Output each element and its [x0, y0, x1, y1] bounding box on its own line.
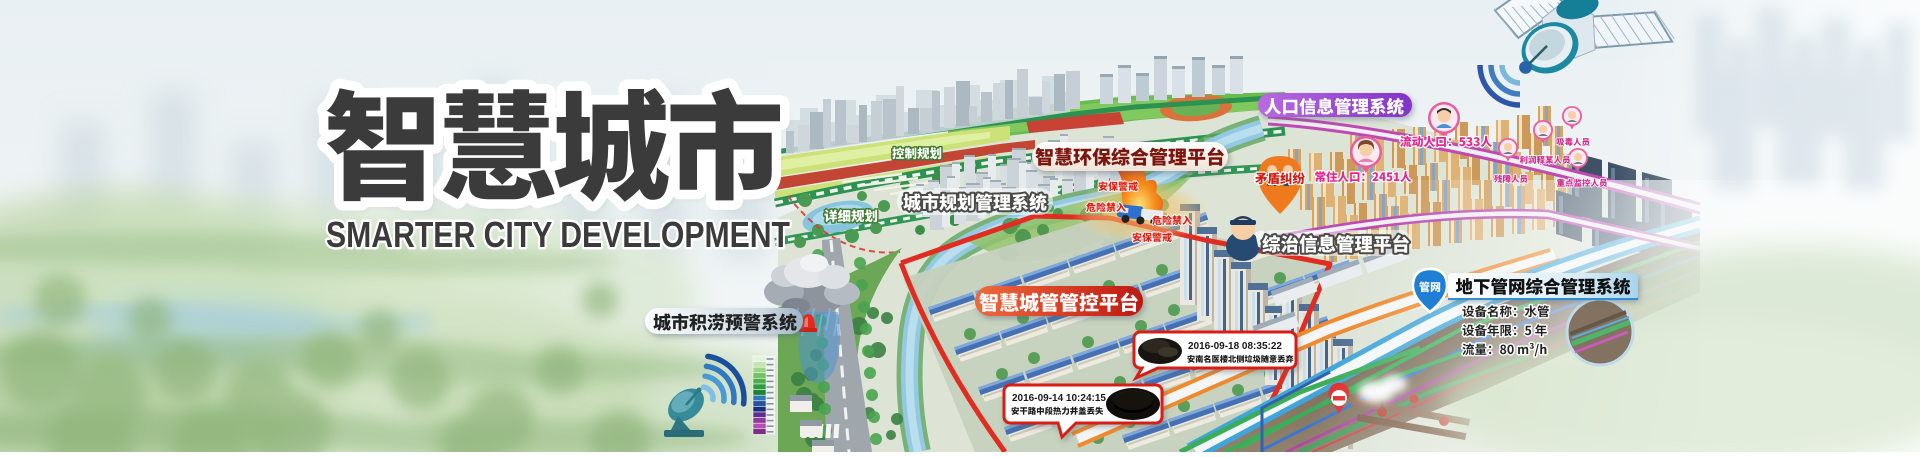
svg-text:2016-09-18 08:35:22: 2016-09-18 08:35:22 — [1188, 341, 1282, 352]
svg-text:SMARTER CITY DEVELOPMENT: SMARTER CITY DEVELOPMENT — [326, 214, 790, 255]
svg-text:2016-09-14 10:24:15: 2016-09-14 10:24:15 — [1012, 393, 1106, 404]
